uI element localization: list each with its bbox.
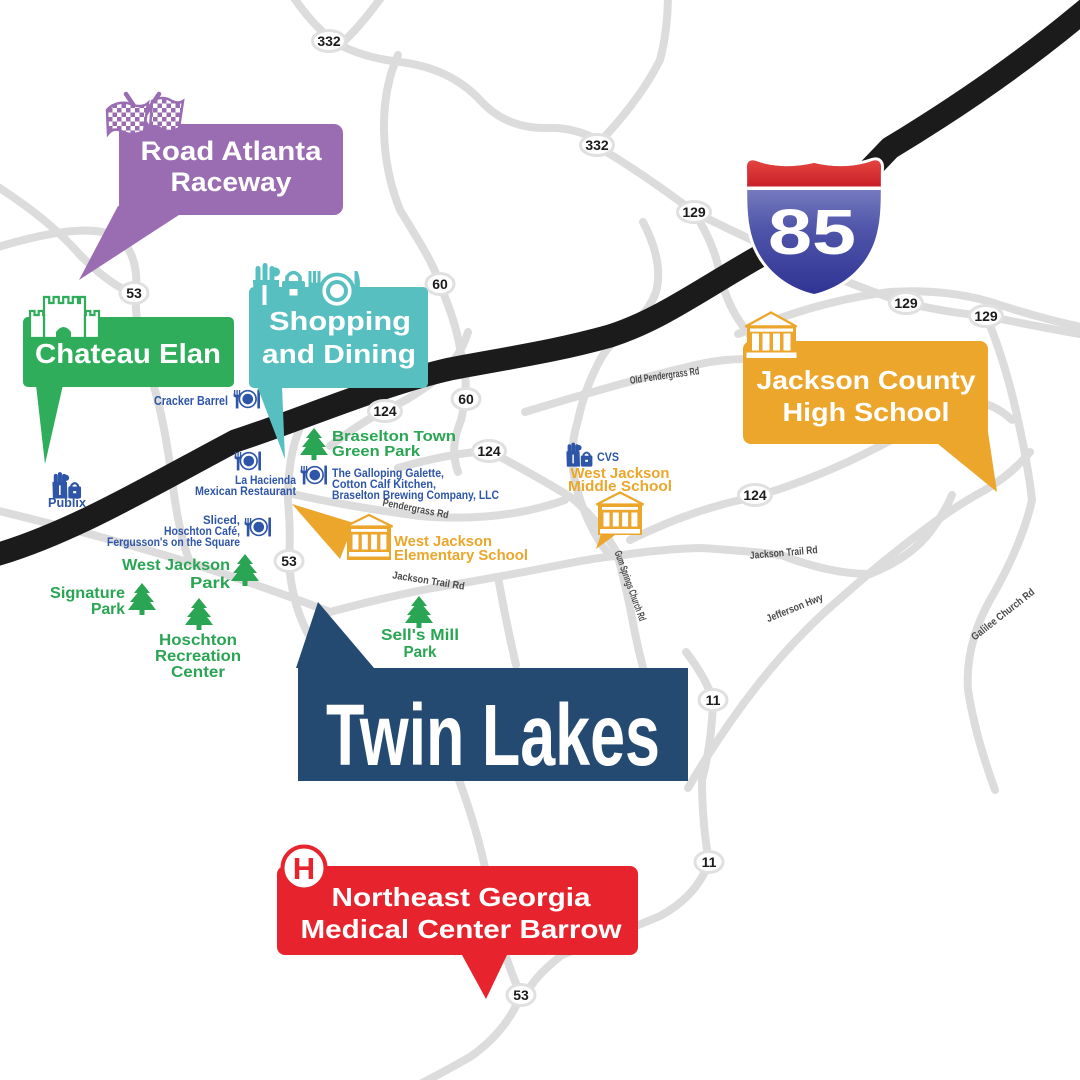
svg-text:332: 332 [317,33,341,49]
svg-text:Sell's Mill: Sell's Mill [381,627,459,644]
svg-text:Fergusson's on the Square: Fergusson's on the Square [107,537,240,549]
svg-text:53: 53 [281,553,297,569]
svg-text:332: 332 [585,137,609,153]
svg-text:124: 124 [477,443,501,459]
svg-text:Center: Center [171,664,225,681]
svg-text:Medical Center Barrow: Medical Center Barrow [301,914,623,944]
svg-text:Park: Park [91,601,125,618]
svg-text:Hoschton: Hoschton [159,632,237,649]
svg-text:129: 129 [974,308,998,324]
svg-text:Recreation: Recreation [155,648,241,665]
svg-text:Northeast Georgia: Northeast Georgia [332,882,592,912]
svg-text:West Jackson: West Jackson [122,557,230,574]
svg-text:53: 53 [513,987,529,1003]
svg-text:Park: Park [404,644,437,661]
svg-text:129: 129 [682,204,706,220]
svg-text:Green Park: Green Park [332,443,421,460]
svg-text:85: 85 [768,196,856,268]
svg-text:11: 11 [706,692,721,708]
svg-text:Twin Lakes: Twin Lakes [326,687,660,784]
svg-text:124: 124 [743,487,767,503]
svg-text:Jackson County: Jackson County [757,365,977,395]
svg-text:53: 53 [126,285,142,301]
svg-text:and Dining: and Dining [262,341,416,369]
svg-text:H: H [293,851,315,886]
svg-text:Road Atlanta: Road Atlanta [141,136,323,166]
svg-text:60: 60 [458,391,474,407]
svg-text:Cracker Barrel: Cracker Barrel [154,394,228,408]
svg-text:CVS: CVS [597,450,619,464]
svg-text:129: 129 [894,295,918,311]
svg-text:11: 11 [702,854,717,870]
svg-text:60: 60 [432,276,448,292]
svg-text:Elementary School: Elementary School [394,547,528,564]
svg-text:Signature: Signature [50,585,125,602]
svg-text:Park: Park [190,575,230,592]
svg-text:Chateau Elan: Chateau Elan [35,338,221,369]
svg-text:Mexican Restaurant: Mexican Restaurant [195,484,296,498]
svg-text:Braselton Brewing Company, LLC: Braselton Brewing Company, LLC [332,488,499,502]
svg-text:Publix: Publix [48,495,87,510]
svg-text:High School: High School [783,397,950,427]
svg-text:Raceway: Raceway [171,167,292,197]
svg-text:Shopping: Shopping [269,308,411,336]
svg-text:124: 124 [373,403,397,419]
